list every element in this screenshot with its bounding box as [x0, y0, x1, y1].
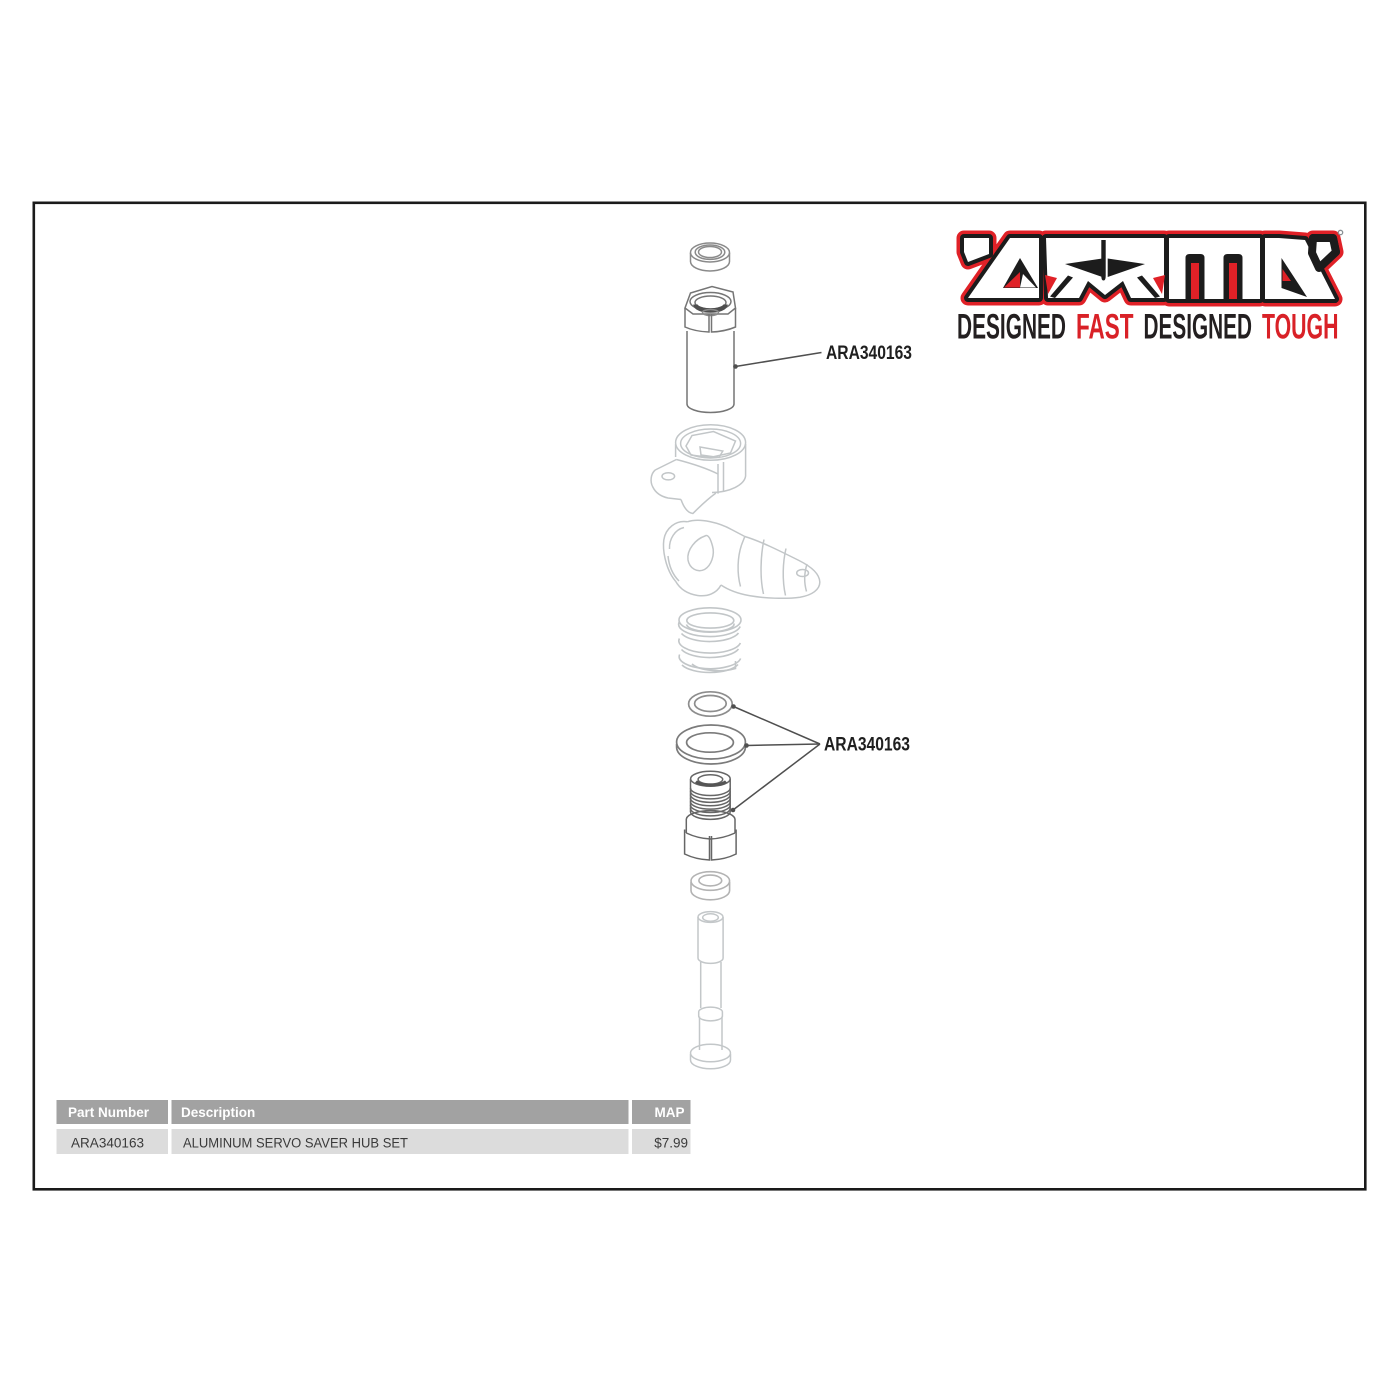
svg-text:MAP: MAP — [655, 1105, 685, 1120]
svg-text:ALUMINUM SERVO SAVER HUB SET: ALUMINUM SERVO SAVER HUB SET — [183, 1136, 408, 1151]
svg-text:ARA340163: ARA340163 — [826, 342, 912, 364]
svg-text:TOUGH: TOUGH — [1262, 308, 1339, 347]
svg-text:$7.99: $7.99 — [654, 1136, 688, 1151]
svg-text:DESIGNED: DESIGNED — [1144, 308, 1253, 347]
svg-text:DESIGNED: DESIGNED — [957, 308, 1066, 347]
svg-text:Part Number: Part Number — [68, 1105, 150, 1120]
svg-text:ARA340163: ARA340163 — [71, 1136, 144, 1151]
svg-text:Description: Description — [181, 1105, 255, 1120]
svg-text:ARA340163: ARA340163 — [824, 734, 910, 756]
svg-text:FAST: FAST — [1076, 308, 1134, 347]
